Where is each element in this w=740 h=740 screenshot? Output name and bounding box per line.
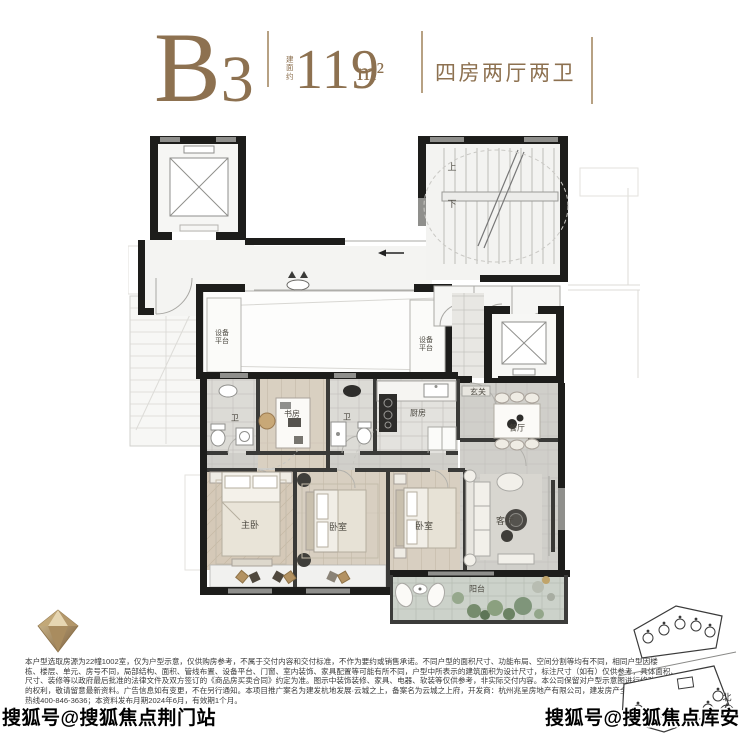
elevator-left bbox=[150, 136, 246, 240]
unit-model-number: 3 bbox=[221, 43, 254, 116]
north-label: 北 bbox=[722, 691, 731, 704]
light-well bbox=[196, 284, 452, 379]
watermark-bottom-right: 搜狐号@搜狐焦点库安站 bbox=[545, 703, 740, 730]
room-label-balcony: 阳台 bbox=[469, 584, 485, 593]
room-label-kitchen: 厨房 bbox=[410, 408, 426, 417]
header-divider bbox=[591, 37, 593, 104]
room-label-study: 书房 bbox=[284, 409, 300, 418]
room-label-bath2: 卫 bbox=[343, 412, 351, 421]
disclaimer-line: 的权利，敬请留意最新资料。广告信息如有变更，不在另行通知。本项目推广案名为建发杭… bbox=[25, 686, 701, 696]
area-prefix-label: 建面约 bbox=[286, 56, 295, 81]
gem-icon bbox=[36, 608, 80, 654]
stair-down-label: 下 bbox=[447, 199, 456, 209]
room-label-entry: 玄关 bbox=[470, 387, 486, 396]
corridor bbox=[245, 238, 432, 298]
disclaimer-line: 栋、楼层、单元、房号不同，局部结构、面积、管线布置、设备平台、门窗、室内装饰、家… bbox=[25, 667, 701, 677]
stair-up-label: 上 bbox=[447, 162, 456, 172]
room-label-dining: 餐厅 bbox=[509, 423, 525, 432]
room-label-bedroom-b: 卧室 bbox=[415, 521, 433, 531]
unit-model: B3 bbox=[154, 18, 254, 118]
layout-label: 四房两厅两卫 bbox=[435, 57, 576, 87]
header-divider bbox=[421, 31, 423, 93]
disclaimer-line: 本户型选取房源为22幢1002室，仅为户型示意，仅供购房参考，不属于交付内容和交… bbox=[25, 657, 701, 667]
room-label-bath1: 卫 bbox=[231, 413, 239, 422]
watermark-bottom-left: 搜狐号@搜狐焦点荆门站 bbox=[2, 703, 216, 730]
room-label-living: 客厅 bbox=[496, 516, 514, 526]
room-label-equipment-left: 设备平台 bbox=[215, 330, 230, 346]
room-label-master: 主卧 bbox=[241, 520, 259, 530]
floorplan-page: B3 建面约 119 m² 四房两厅两卫 bbox=[0, 0, 740, 740]
disclaimer-line: 尺寸、装修等以政府最后批准的法律文件及双方签订的《商品房买卖合同》约定为准。图示… bbox=[25, 676, 701, 686]
elevator-right bbox=[452, 293, 564, 386]
area-unit: m² bbox=[357, 60, 384, 85]
room-label-bedroom-a: 卧室 bbox=[329, 522, 347, 532]
unit-model-letter: B bbox=[154, 12, 221, 123]
header-divider bbox=[267, 31, 269, 87]
disclaimer: 本户型选取房源为22幢1002室，仅为户型示意，仅供购房参考，不属于交付内容和交… bbox=[25, 657, 701, 706]
room-label-equipment-right: 设备平台 bbox=[419, 337, 434, 353]
floorplan-drawing bbox=[128, 128, 643, 630]
